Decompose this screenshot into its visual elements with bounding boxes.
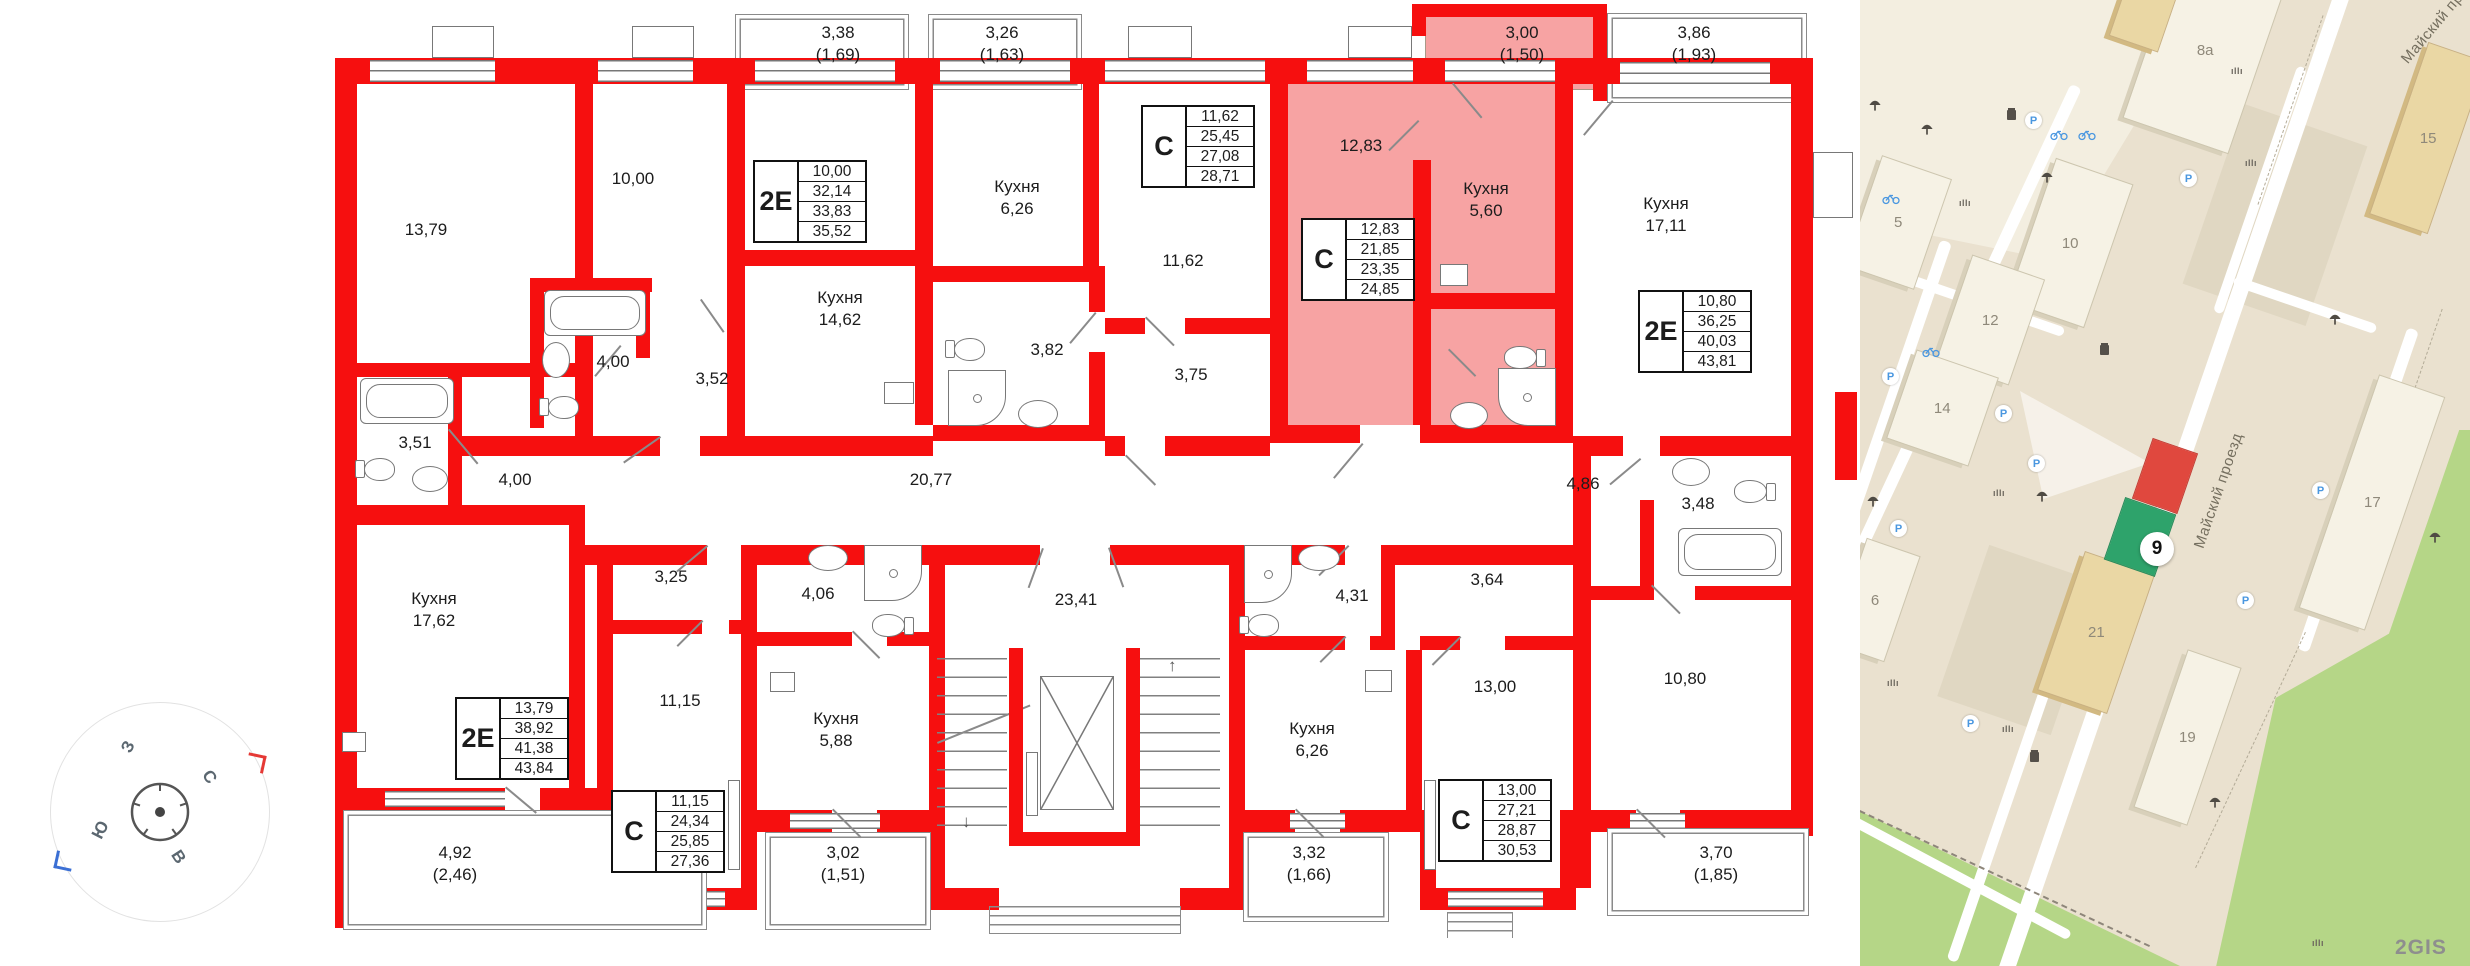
sink — [1672, 458, 1710, 486]
parking-icon: P — [2025, 112, 2042, 129]
door-swing — [1125, 455, 1156, 486]
room-name: Кухня — [781, 708, 891, 730]
apartment-spec-table: 2Е 10,8036,2540,0343,81 — [1638, 290, 1752, 373]
toilet — [945, 337, 985, 363]
wall — [1593, 4, 1607, 101]
room-area-label: 11,62 — [1128, 250, 1238, 272]
wall — [1573, 436, 1623, 456]
map-building-label: 17 — [2364, 494, 2381, 511]
wall — [933, 266, 1105, 282]
apartment-spec-table: 2Е 10,0032,1433,8335,52 — [753, 160, 867, 243]
map-building-label: 10 — [2062, 235, 2079, 252]
wall — [729, 620, 757, 634]
room-area-label: Кухня6,26 — [1257, 718, 1367, 762]
spec-value: 10,80 — [1684, 292, 1750, 312]
balcony-area-reduced: (1,51) — [788, 864, 898, 886]
entrance-icon: ıllı — [1959, 198, 1971, 208]
room-area-value: 4,06 — [763, 583, 873, 605]
room-area-label: 4,00 — [460, 469, 570, 491]
spec-value: 13,79 — [501, 699, 567, 719]
apartment-spec-table: С 13,0027,2128,8730,53 — [1438, 779, 1552, 862]
room-area-label: 3,48 — [1643, 493, 1753, 515]
spec-value: 23,35 — [1347, 260, 1413, 280]
room-area-value: 3,82 — [992, 339, 1102, 361]
wall — [877, 810, 945, 832]
wall — [357, 505, 585, 525]
spec-value: 25,85 — [657, 832, 723, 852]
room-area-value: 3,48 — [1643, 493, 1753, 515]
wall — [569, 505, 585, 788]
bathtub — [360, 378, 454, 424]
balcony-area-reduced: (1,69) — [783, 44, 893, 66]
spec-value: 24,34 — [657, 812, 723, 832]
bike-parking-icon — [1922, 345, 1940, 358]
wall — [1660, 436, 1791, 456]
wall — [1009, 832, 1140, 846]
room-area-label: 10,80 — [1630, 668, 1740, 690]
room-area-label: 4,86 — [1528, 473, 1638, 495]
room-area-value: 6,26 — [962, 198, 1072, 220]
room-area-value: 4,31 — [1297, 585, 1407, 607]
wall — [1390, 545, 1573, 565]
balcony-area-label: 3,32(1,66) — [1254, 842, 1364, 886]
balcony-area-reduced: (1,93) — [1639, 44, 1749, 66]
room-area-label: 10,00 — [578, 168, 688, 190]
sink — [1018, 400, 1058, 428]
shower — [1244, 545, 1292, 603]
room-area-value: 6,26 — [1257, 740, 1367, 762]
balcony-area-label: 3,00(1,50) — [1467, 22, 1577, 66]
wall — [1695, 586, 1791, 600]
map-building-label: 12 — [1982, 312, 1999, 329]
mini-map[interactable]: 5 8а 10 12 14 15 17 19 21 6 9 P P P P P … — [1860, 0, 2470, 966]
kitchen-sink — [1365, 670, 1392, 692]
room-area-value: 13,79 — [371, 219, 481, 241]
room-area-value: 10,00 — [578, 168, 688, 190]
room-area-value: 10,80 — [1630, 668, 1740, 690]
parking-icon: P — [1995, 405, 2012, 422]
spec-value: 32,14 — [799, 182, 865, 202]
map-building-19[interactable]: 19 — [2135, 651, 2241, 825]
spec-value: 35,52 — [799, 222, 865, 241]
map-building-label: 5 — [1894, 214, 1902, 231]
parking-icon: P — [2180, 170, 2197, 187]
spec-value: 24,85 — [1347, 280, 1413, 299]
room-area-label: Кухня14,62 — [785, 287, 895, 331]
vent-shaft — [432, 26, 494, 58]
entrance-steps — [989, 906, 1181, 934]
wall — [1406, 650, 1422, 810]
balcony-area-label: 3,26(1,63) — [947, 22, 1057, 66]
window — [598, 60, 693, 82]
bike-parking-icon — [2050, 128, 2068, 141]
parking-icon: P — [2237, 592, 2254, 609]
wall — [1560, 810, 1576, 900]
badge-number: 9 — [2152, 538, 2163, 560]
wall — [1009, 648, 1023, 844]
balcony-area-value: 3,02 — [788, 842, 898, 864]
window — [1290, 813, 1345, 829]
map-building-6[interactable]: 6 — [1860, 539, 1919, 661]
spec-value: 21,85 — [1347, 240, 1413, 260]
wall — [933, 425, 1105, 441]
stair-flight — [1140, 658, 1220, 842]
kitchen-sink — [770, 672, 795, 692]
balcony-area-reduced: (1,50) — [1467, 44, 1577, 66]
window — [370, 60, 495, 82]
room-name: Кухня — [379, 588, 489, 610]
wardrobe — [728, 780, 740, 870]
entrance-icon: ıllı — [2245, 158, 2257, 168]
room-area-label: 3,51 — [360, 432, 470, 454]
room-area-value: 5,60 — [1431, 200, 1541, 222]
wardrobe — [1424, 780, 1436, 870]
apartment-spec-table: С 11,1524,3425,8527,36 — [611, 790, 725, 873]
vent-shaft — [1348, 26, 1412, 58]
toilet — [539, 395, 579, 421]
map-highlighted-building-red[interactable] — [2133, 439, 2197, 513]
door-swing — [1583, 100, 1613, 136]
room-area-label: 3,52 — [657, 368, 767, 390]
wall — [915, 58, 933, 425]
room-area-value: 11,15 — [625, 690, 735, 712]
tree-icon — [2328, 312, 2342, 326]
balcony-area-label: 4,92(2,46) — [400, 842, 510, 886]
apartment-type: С — [613, 792, 655, 871]
room-area-label: 3,75 — [1136, 364, 1246, 386]
room-area-label: 13,79 — [371, 219, 481, 241]
toilet — [355, 457, 395, 483]
wall — [1591, 586, 1651, 600]
door-swing — [1145, 317, 1175, 347]
window — [385, 791, 505, 807]
balcony-area-reduced: (1,66) — [1254, 864, 1364, 886]
floor-plan: ↓ ↑ — [0, 0, 1860, 966]
spec-value: 13,00 — [1484, 781, 1550, 801]
kitchen-sink — [342, 732, 366, 752]
balcony-area-label: 3,86(1,93) — [1639, 22, 1749, 66]
entrance-icon: ıllı — [2002, 724, 2014, 734]
spec-value: 10,00 — [799, 162, 865, 182]
balcony-area-value: 3,86 — [1639, 22, 1749, 44]
kitchen-sink — [1440, 264, 1468, 286]
vent-shaft — [632, 26, 694, 58]
wall — [597, 620, 702, 634]
tree-icon — [2208, 795, 2222, 809]
tree-icon — [2035, 489, 2049, 503]
tree-icon — [1868, 98, 1882, 112]
room-name: Кухня — [962, 176, 1072, 198]
wall — [1105, 436, 1125, 456]
map-building-label: 14 — [1934, 400, 1951, 417]
spec-value: 43,81 — [1684, 352, 1750, 371]
room-area-label: 3,82 — [992, 339, 1102, 361]
room-name: Кухня — [785, 287, 895, 309]
compass-north-marker-icon — [245, 752, 266, 773]
map-building-label: 19 — [2179, 729, 2196, 746]
map-building-label: 21 — [2088, 624, 2105, 641]
balcony-area-value: 3,38 — [783, 22, 893, 44]
room-area-value: 4,00 — [460, 469, 570, 491]
apartment-spec-table: С 11,6225,4527,0828,71 — [1141, 105, 1255, 188]
wall — [1165, 436, 1270, 456]
room-area-value: 4,00 — [558, 351, 668, 373]
room-area-label: 20,77 — [876, 469, 986, 491]
balcony-area-reduced: (1,85) — [1661, 864, 1771, 886]
bike-parking-icon — [2078, 128, 2096, 141]
kitchen-sink — [884, 382, 914, 404]
tree-icon — [1920, 122, 1934, 136]
room-area-value: 12,83 — [1306, 135, 1416, 157]
map-building-label: 8а — [2197, 42, 2214, 59]
bathtub — [1678, 528, 1782, 576]
compass: З С Ю В — [50, 702, 270, 922]
room-area-label: Кухня6,26 — [962, 176, 1072, 220]
spec-value: 43,84 — [501, 759, 567, 778]
wall — [745, 250, 917, 266]
room-area-value: 17,11 — [1611, 215, 1721, 237]
sink — [1450, 402, 1488, 429]
spec-value: 27,21 — [1484, 801, 1550, 821]
wall — [1412, 4, 1607, 17]
wall — [741, 810, 757, 910]
spec-value: 36,25 — [1684, 312, 1750, 332]
spec-value: 40,03 — [1684, 332, 1750, 352]
wall — [1431, 293, 1555, 309]
room-area-value: 17,62 — [379, 610, 489, 632]
door-swing — [1651, 585, 1681, 615]
wall — [1180, 888, 1245, 910]
wall — [1835, 392, 1857, 480]
entrance-icon: ıllı — [1887, 678, 1899, 688]
wall — [1555, 58, 1573, 443]
window — [790, 813, 880, 829]
room-area-label: 4,06 — [763, 583, 873, 605]
spec-value: 30,53 — [1484, 841, 1550, 860]
balcony-area-reduced: (1,63) — [947, 44, 1057, 66]
spec-value: 12,83 — [1347, 220, 1413, 240]
sink — [412, 466, 448, 492]
sink — [1298, 545, 1340, 571]
wall — [1270, 425, 1360, 443]
apartment-type: С — [1143, 107, 1185, 186]
wall — [1083, 58, 1099, 282]
window — [1448, 891, 1543, 907]
map-building-label: 6 — [1871, 592, 1879, 609]
wall — [1245, 810, 1295, 832]
entrance-steps — [1447, 912, 1513, 938]
balcony-area-label: 3,38(1,69) — [783, 22, 893, 66]
balcony-area-value: 3,26 — [947, 22, 1057, 44]
map-building-label: 15 — [2420, 130, 2437, 147]
bathtub — [544, 290, 646, 336]
room-area-label: 11,15 — [625, 690, 735, 712]
parking-icon: P — [1882, 368, 1899, 385]
tree-icon — [2428, 530, 2442, 544]
wall — [1089, 282, 1105, 312]
room-name: Кухня — [1257, 718, 1367, 740]
apartment-type: 2Е — [457, 699, 499, 778]
room-area-label: 3,25 — [616, 566, 726, 588]
wall — [1505, 636, 1573, 650]
wall — [335, 58, 1813, 84]
room-area-label: 4,31 — [1297, 585, 1407, 607]
room-area-value: 3,52 — [657, 368, 767, 390]
toilet — [1239, 613, 1279, 639]
wall — [1185, 318, 1270, 334]
map-watermark: 2GIS — [2395, 936, 2447, 960]
toilet — [1504, 344, 1546, 370]
wall — [1420, 425, 1573, 443]
room-area-label: 12,83 — [1306, 135, 1416, 157]
room-area-value: 5,88 — [781, 730, 891, 752]
wall — [1791, 58, 1813, 836]
apartment-spec-table-highlighted: С 12,8321,8523,3524,85 — [1301, 218, 1415, 301]
parking-icon: P — [1890, 520, 1907, 537]
entrance-icon: ıllı — [2312, 938, 2324, 948]
wall — [1126, 648, 1140, 844]
spec-value: 41,38 — [501, 739, 567, 759]
wall — [1413, 160, 1431, 425]
parking-icon: P — [1962, 715, 1979, 732]
room-area-value: 3,25 — [616, 566, 726, 588]
room-area-value: 11,62 — [1128, 250, 1238, 272]
parking-icon: P — [2028, 455, 2045, 472]
bike-parking-icon — [1882, 192, 1900, 205]
window — [1105, 60, 1265, 82]
room-area-value: 23,41 — [1021, 589, 1131, 611]
entrance-icon: ıllı — [2231, 66, 2243, 76]
trash-icon — [2030, 752, 2039, 762]
tree-icon — [2040, 170, 2054, 184]
balcony-area-value: 3,70 — [1661, 842, 1771, 864]
spec-value: 11,15 — [657, 792, 723, 812]
room-area-value: 13,00 — [1440, 676, 1550, 698]
spec-value: 27,36 — [657, 852, 723, 871]
wall — [1105, 318, 1145, 334]
spec-value: 28,71 — [1187, 167, 1253, 186]
balcony-area-value: 3,32 — [1254, 842, 1364, 864]
room-area-label: Кухня17,11 — [1611, 193, 1721, 237]
entrance-icon: ıllı — [1993, 488, 2005, 498]
map-building-number-badge[interactable]: 9 — [2140, 532, 2174, 566]
balcony-area-value: 4,92 — [400, 842, 510, 864]
spec-value: 33,83 — [799, 202, 865, 222]
room-area-value: 3,75 — [1136, 364, 1246, 386]
map-building-15[interactable]: 15 — [2370, 43, 2470, 233]
apartment-spec-table: 2Е 13,7938,9241,3843,84 — [455, 697, 569, 780]
room-area-label: 4,00 — [558, 351, 668, 373]
wall — [757, 632, 852, 646]
stair-up-arrow: ↑ — [1168, 656, 1177, 676]
compass-dial-icon — [128, 780, 192, 844]
apartment-type: С — [1303, 220, 1345, 299]
trash-icon — [2007, 110, 2016, 120]
stair-down-arrow: ↓ — [962, 812, 971, 832]
apartment-type: С — [1440, 781, 1482, 860]
spec-value: 27,08 — [1187, 147, 1253, 167]
door-swing — [1333, 443, 1363, 479]
wall — [1110, 545, 1245, 565]
room-name: Кухня — [1431, 178, 1541, 200]
wall — [575, 80, 593, 436]
room-area-label: 3,64 — [1432, 569, 1542, 591]
vent-shaft — [1128, 26, 1192, 58]
parking-icon: P — [2312, 482, 2329, 499]
wall — [1270, 58, 1288, 443]
room-name: Кухня — [1611, 193, 1721, 215]
room-area-label: Кухня5,60 — [1431, 178, 1541, 222]
door-swing — [700, 299, 725, 333]
elevator-cross-icon — [1041, 677, 1113, 809]
room-area-value: 3,51 — [360, 432, 470, 454]
apartment-type: 2Е — [1640, 292, 1682, 371]
spec-value: 28,87 — [1484, 821, 1550, 841]
room-area-label: Кухня17,62 — [379, 588, 489, 632]
wall — [1370, 636, 1395, 650]
room-area-value: 14,62 — [785, 309, 895, 331]
window — [1630, 813, 1685, 829]
map-view-cone — [2020, 385, 2150, 505]
apartment-type: 2Е — [755, 162, 797, 241]
balcony-area-value: 3,00 — [1467, 22, 1577, 44]
elevator-counterweight — [1026, 752, 1038, 816]
wall — [700, 436, 933, 456]
room-area-value: 3,64 — [1432, 569, 1542, 591]
sink — [808, 545, 848, 571]
spec-value: 38,92 — [501, 719, 567, 739]
room-area-value: 20,77 — [876, 469, 986, 491]
room-area-label: 23,41 — [1021, 589, 1131, 611]
shower — [948, 370, 1006, 426]
compass-south-marker-icon — [53, 850, 74, 871]
toilet — [872, 612, 914, 638]
spec-value: 11,62 — [1187, 107, 1253, 127]
balcony-area-label: 3,70(1,85) — [1661, 842, 1771, 886]
trash-icon — [2100, 345, 2109, 355]
window — [1307, 60, 1413, 82]
room-area-label: Кухня5,88 — [781, 708, 891, 752]
vent-shaft — [1813, 152, 1853, 218]
wall — [460, 436, 660, 456]
balcony-area-reduced: (2,46) — [400, 864, 510, 886]
room-area-value: 4,86 — [1528, 473, 1638, 495]
spec-value: 25,45 — [1187, 127, 1253, 147]
stair-flight — [937, 658, 1007, 842]
tree-icon — [1866, 494, 1880, 508]
balcony-area-label: 3,02(1,51) — [788, 842, 898, 886]
shower — [1498, 368, 1556, 426]
elevator — [1040, 676, 1114, 810]
room-area-label: 13,00 — [1440, 676, 1550, 698]
